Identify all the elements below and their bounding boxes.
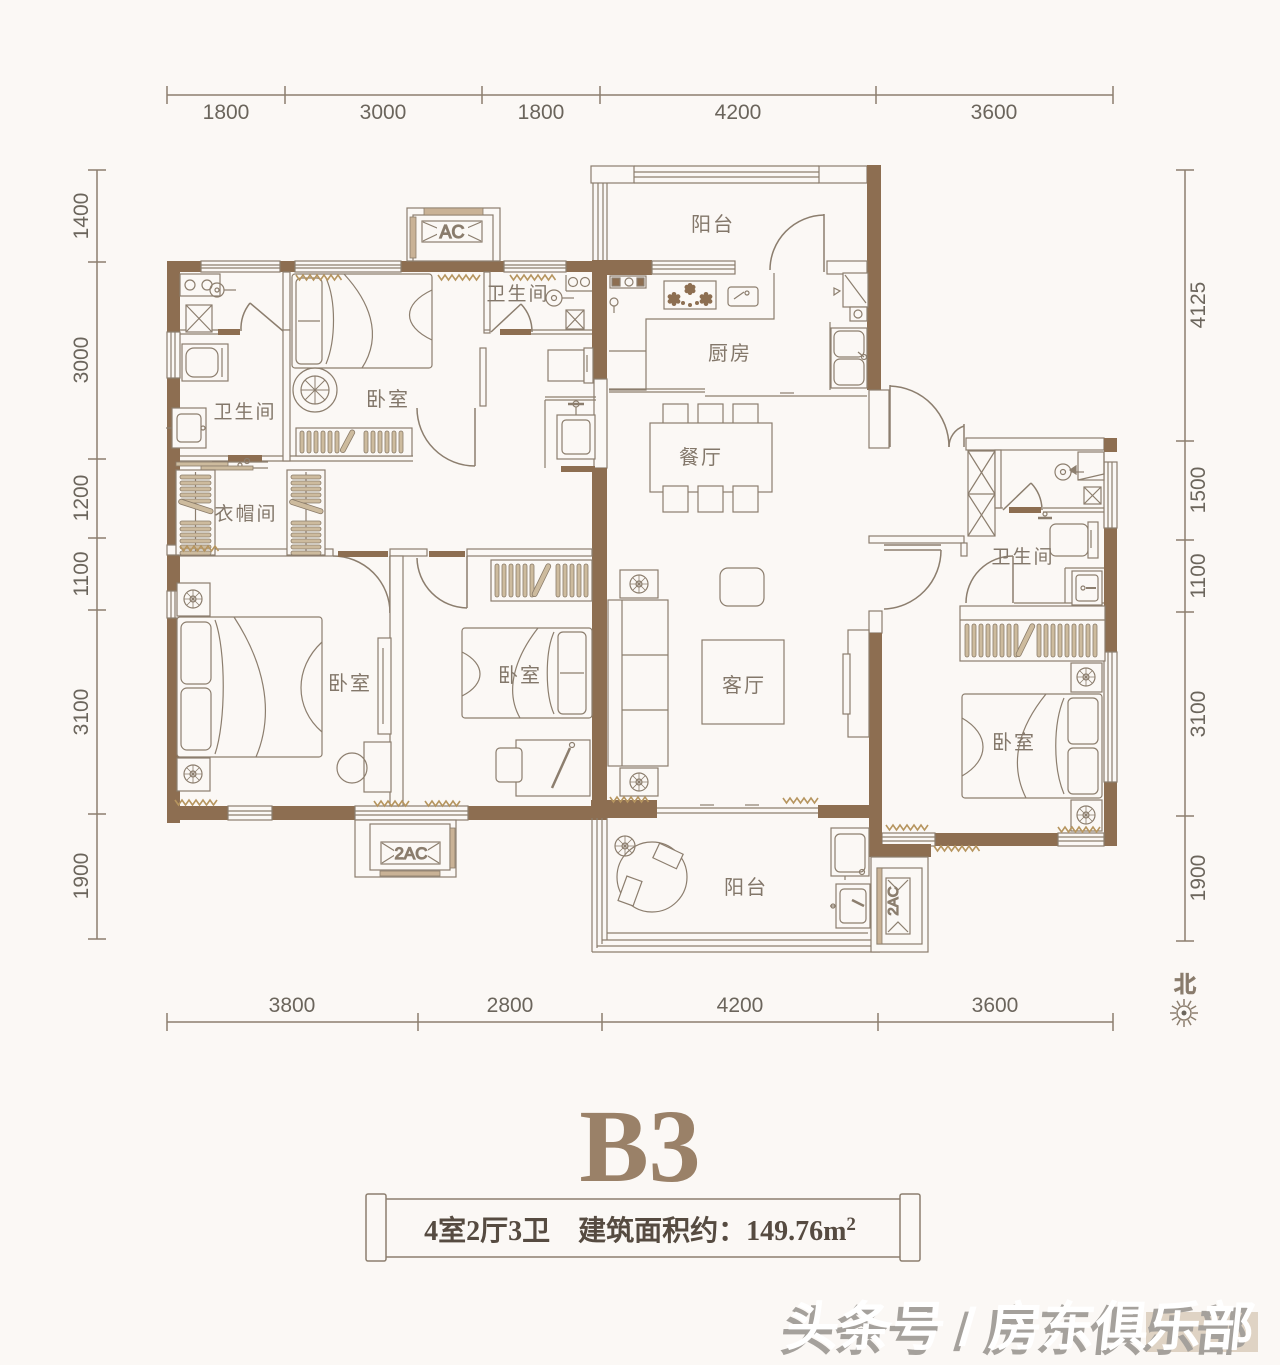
- svg-text:4200: 4200: [717, 994, 764, 1017]
- svg-text:AC: AC: [439, 222, 464, 242]
- svg-text:3800: 3800: [269, 994, 316, 1017]
- svg-text:3000: 3000: [70, 337, 93, 384]
- svg-text:4125: 4125: [1187, 282, 1210, 329]
- svg-text:3000: 3000: [360, 101, 407, 124]
- svg-text:3100: 3100: [1187, 691, 1210, 738]
- svg-text:卫生间: 卫生间: [991, 546, 1054, 568]
- svg-text:2AC: 2AC: [885, 886, 902, 915]
- svg-text:2800: 2800: [487, 994, 534, 1017]
- svg-text:衣帽间: 衣帽间: [214, 503, 277, 525]
- svg-text:2AC: 2AC: [394, 844, 427, 863]
- svg-text:卫生间: 卫生间: [213, 401, 276, 423]
- svg-text:阳台: 阳台: [691, 213, 735, 236]
- svg-text:4200: 4200: [715, 101, 762, 124]
- svg-text:卧室: 卧室: [498, 664, 542, 687]
- svg-text:1900: 1900: [1187, 855, 1210, 902]
- svg-text:卫生间: 卫生间: [486, 283, 549, 305]
- svg-text:卧室: 卧室: [328, 672, 372, 695]
- svg-text:3100: 3100: [70, 689, 93, 736]
- svg-text:1800: 1800: [203, 101, 250, 124]
- svg-text:1100: 1100: [70, 551, 93, 596]
- svg-text:1900: 1900: [70, 853, 93, 900]
- svg-text:1200: 1200: [70, 475, 93, 522]
- svg-text:阳台: 阳台: [724, 876, 768, 899]
- svg-text:1800: 1800: [518, 101, 565, 124]
- svg-text:B3: B3: [579, 1089, 700, 1204]
- svg-text:1100: 1100: [1187, 553, 1210, 598]
- svg-text:卧室: 卧室: [366, 388, 410, 411]
- svg-text:客厅: 客厅: [722, 674, 766, 697]
- svg-text:4室2厅3卫 建筑面积约：149.76m2: 4室2厅3卫 建筑面积约：149.76m2: [424, 1214, 856, 1247]
- svg-text:头条号 / 房东俱乐部: 头条号 / 房东俱乐部: [783, 1298, 1257, 1357]
- svg-text:3600: 3600: [972, 994, 1019, 1017]
- svg-text:1400: 1400: [70, 193, 93, 240]
- svg-text:卧室: 卧室: [992, 731, 1036, 754]
- svg-text:3600: 3600: [971, 101, 1018, 124]
- svg-text:1500: 1500: [1187, 467, 1210, 514]
- svg-text:餐厅: 餐厅: [679, 446, 723, 469]
- svg-text:北: 北: [1174, 972, 1196, 997]
- svg-text:厨房: 厨房: [708, 342, 752, 365]
